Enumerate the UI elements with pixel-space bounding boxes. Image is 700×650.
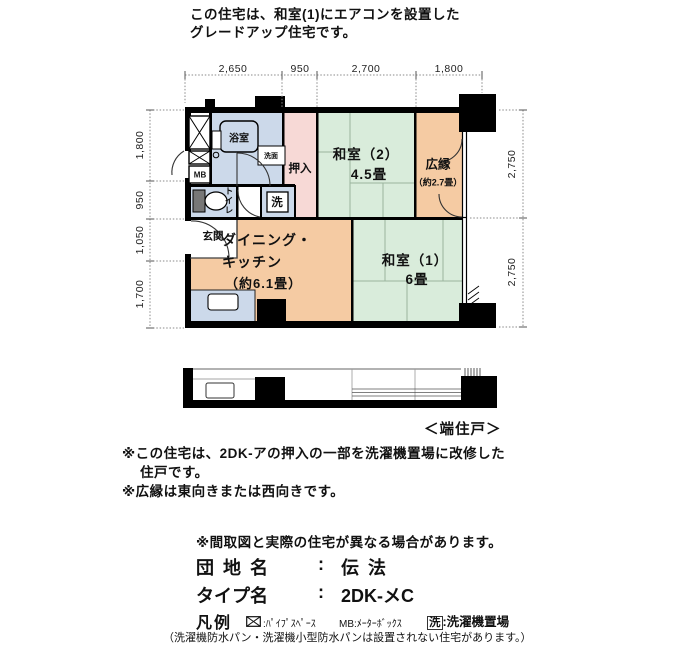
- header-note: この住宅は、和室(1)にエアコンを設置した グレードアップ住宅です。: [190, 6, 460, 42]
- dim-top-2: 950: [290, 63, 309, 75]
- header-line1: この住宅は、和室(1)にエアコンを設置した: [190, 6, 460, 24]
- estate-value: 伝 法: [341, 554, 388, 580]
- room-label-veranda: 広縁: [425, 154, 450, 173]
- legend-mb: MB:ﾒｰﾀｰﾎﾞｯｸｽ: [339, 615, 402, 630]
- room-label-closet: 押入: [289, 160, 312, 176]
- type-value: 2DK-メC: [341, 582, 414, 608]
- estate-label: 団 地 名: [196, 554, 270, 580]
- room-label-dk: ダイニング・ キッチン （約6.1畳）: [222, 230, 312, 295]
- room-label-bath: 浴室: [229, 130, 249, 145]
- note1-line1: ※この住宅は、2DK-アの押入の一部を洗濯機置場に改修した: [122, 442, 505, 462]
- unit-position-tag: ＜端住戸＞: [424, 418, 502, 439]
- disclaimer: ※間取図と実際の住宅が異なる場合があります。: [196, 531, 502, 551]
- room-label-jroom2: 和室（2）: [333, 143, 400, 163]
- header-line2: グレードアップ住宅です。: [190, 24, 460, 42]
- legend-ps: :ﾊﾟｲﾌﾟｽﾍﾟｰｽ: [263, 615, 316, 630]
- room-label-toilet: トイレ: [223, 187, 235, 216]
- dim-left-2: 950: [134, 190, 146, 209]
- dim-top-3: 2,700: [352, 63, 381, 75]
- balcony-section: [183, 368, 497, 408]
- note2: ※広縁は東向きまたは西向きです。: [122, 480, 344, 500]
- type-label: タイプ名: [196, 582, 268, 608]
- room-label-veranda-size: （約2.7畳）: [414, 176, 463, 189]
- legend-footnote: （洗濯機防水パン・洗濯機小型防水パンは設置されない住宅があります。）: [163, 629, 532, 645]
- sink-icon: [208, 294, 238, 310]
- legend-washer: 洗:洗濯機置場: [427, 611, 509, 630]
- legend-washer-label: 洗濯機置場: [447, 615, 510, 629]
- water-heater-icon: [212, 131, 221, 149]
- dim-right-1: 2,750: [506, 150, 518, 179]
- room-label-jroom1-size: 6畳: [405, 268, 428, 288]
- dim-left-4: 1,700: [134, 280, 146, 309]
- floorplan-page: この住宅は、和室(1)にエアコンを設置した グレードアップ住宅です。 2,650…: [0, 0, 700, 650]
- type-separator: :: [318, 582, 326, 603]
- toilet-tank-icon: [193, 190, 205, 212]
- dim-left-3: 1,050: [134, 226, 146, 255]
- room-label-entrance: 玄関: [203, 229, 224, 244]
- room-label-washer: 洗: [271, 194, 283, 210]
- room-label-mb: MB: [194, 171, 206, 180]
- top-right-pillar: [459, 94, 496, 132]
- dk-line1: ダイニング・: [222, 230, 312, 252]
- wall-bump: [205, 99, 215, 108]
- dim-top-4: 1,800: [435, 63, 464, 75]
- dim-right-2: 2,750: [506, 258, 518, 287]
- balcony-sink-icon: [206, 383, 234, 398]
- floor-plan-drawing: [0, 0, 700, 650]
- door-arc: [172, 151, 184, 175]
- bottom-right-pillar: [459, 303, 496, 328]
- legend-washer-key: 洗: [427, 616, 443, 630]
- dk-line2: キッチン: [222, 252, 312, 274]
- dim-left-1: 1,800: [134, 131, 146, 160]
- bottom-pillar: [257, 299, 286, 328]
- pipe-space-icon: [246, 616, 261, 627]
- top-pillar: [255, 96, 285, 113]
- room-label-jroom2-size: 4.5畳: [351, 163, 387, 183]
- estate-separator: :: [318, 554, 326, 575]
- room-label-jroom1: 和室（1）: [382, 249, 449, 269]
- dk-size: （約6.1畳）: [222, 273, 312, 295]
- window-lines: [462, 132, 479, 306]
- room-label-washstand: 洗面: [264, 151, 278, 161]
- dim-top-1: 2,650: [219, 63, 248, 75]
- note1-line2: 住戸です。: [140, 461, 209, 481]
